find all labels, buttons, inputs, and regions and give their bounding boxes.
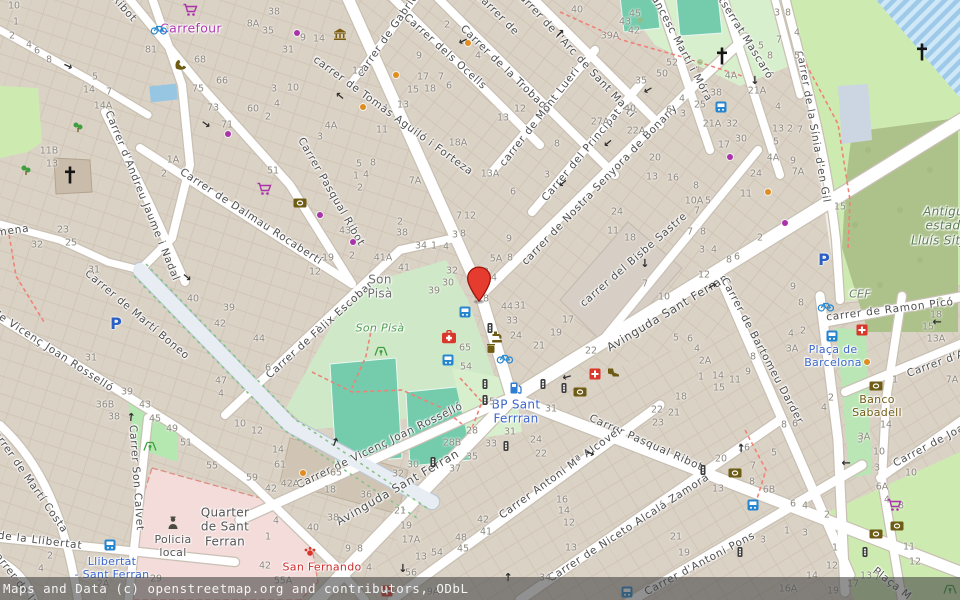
street-label: Carrer de Vicenç Joan Rosselló <box>295 400 465 492</box>
house-number: 4 <box>475 51 481 62</box>
house-number: 43 <box>139 400 151 411</box>
house-number: 18 <box>424 84 436 95</box>
playground-icon <box>374 346 388 357</box>
house-number: 7A <box>409 176 422 187</box>
place-label: Son Pisà <box>367 273 392 302</box>
house-number: 1 <box>431 241 437 252</box>
light-icon <box>482 395 488 406</box>
tree-icon <box>20 164 32 176</box>
map-canvas[interactable]: RibotCarrer Pasqual Ribotcarrer de Tomàs… <box>0 0 960 600</box>
house-number: 2A <box>699 356 712 367</box>
house-number: 32 <box>726 119 738 130</box>
house-number: 38 <box>268 7 280 18</box>
house-number: 7 <box>776 35 782 46</box>
cart-icon <box>183 4 198 17</box>
house-number: 10 <box>873 447 885 458</box>
church-icon <box>64 167 77 184</box>
house-number: 36 <box>360 490 372 501</box>
house-number: 7 <box>642 279 648 290</box>
poi-dot <box>727 154 733 160</box>
house-number: 7 <box>687 227 693 238</box>
house-number: 12 <box>563 518 575 529</box>
house-number: 13 <box>46 159 58 170</box>
house-number: 38 <box>327 513 339 524</box>
light-icon <box>430 457 436 468</box>
bus-icon <box>747 499 759 511</box>
house-number: 65 <box>459 343 471 354</box>
house-number: 8 <box>507 253 513 264</box>
house-number: 10 <box>905 468 917 479</box>
house-number: 47 <box>215 376 227 387</box>
house-number: 1 <box>784 526 790 537</box>
house-number: 38 <box>710 88 722 99</box>
cart-icon <box>887 499 902 512</box>
house-number: 8 <box>554 139 560 150</box>
house-number: 8 <box>785 8 791 19</box>
place-label: Banco Sabadell <box>852 393 902 419</box>
house-number: 6 <box>734 252 740 263</box>
house-number: 13 <box>712 484 724 495</box>
house-number: 7 <box>694 206 700 217</box>
house-number: 7A <box>792 167 805 178</box>
house-number: 18 <box>324 485 336 496</box>
oneway-arrow: → <box>841 457 850 470</box>
house-number: 7A <box>946 375 959 386</box>
poi-dot <box>350 239 356 245</box>
house-number: 45 <box>149 414 161 425</box>
house-number: 45 <box>629 9 641 20</box>
house-number: 3 <box>774 8 780 19</box>
house-number: 7 <box>438 72 444 83</box>
house-number: 37 <box>449 464 461 475</box>
house-number: 4A <box>725 71 738 82</box>
house-number: 4 <box>273 516 279 527</box>
police-icon <box>167 516 179 530</box>
street-label: Ribot <box>109 0 139 25</box>
street-label: Montserrat Mascaró <box>702 0 776 82</box>
house-number: 38 <box>108 412 120 423</box>
house-number: 12 <box>909 557 921 568</box>
house-number: 44 <box>253 334 265 345</box>
house-number: 8 <box>781 420 787 431</box>
house-number: 21 <box>668 408 680 419</box>
bike-icon <box>151 23 168 35</box>
house-number: 14 <box>313 34 325 45</box>
house-number: 23 <box>57 225 69 236</box>
house-number: 10 <box>658 292 670 303</box>
house-number: 3A <box>786 344 799 355</box>
light-icon <box>737 547 743 558</box>
house-number: 2 <box>787 124 793 135</box>
house-number: 66 <box>216 76 228 87</box>
house-number: 32 <box>392 469 404 480</box>
house-number: 3 <box>544 170 550 181</box>
place-label: Antigu estadi Lluís Sitj <box>911 204 960 247</box>
house-number: 34 <box>415 241 427 252</box>
place-label: BP Sant Ferrran <box>492 398 541 427</box>
poi-dot <box>782 220 788 226</box>
house-number: 24 <box>510 331 522 342</box>
house-number: 11B <box>40 146 59 157</box>
house-number: 14 <box>272 445 284 456</box>
house-number: 4 <box>274 99 280 110</box>
house-number: 8 <box>357 544 363 555</box>
house-number: 31 <box>545 404 557 415</box>
house-number: 33 <box>485 439 497 450</box>
place-label: Son Pisà <box>356 321 405 334</box>
location-pin-icon <box>466 266 492 304</box>
bus-icon <box>715 101 727 113</box>
shoe-icon <box>606 368 620 379</box>
house-number: 31 <box>85 353 97 364</box>
house-number: 6A <box>876 482 889 493</box>
house-number: 32 <box>31 240 43 251</box>
street-label: Carrer de Martí Costa <box>0 422 70 535</box>
house-number: 5A <box>490 254 503 265</box>
house-number: 3 <box>317 132 323 143</box>
house-number: 6 <box>510 187 516 198</box>
bank-icon <box>869 529 883 539</box>
house-number: 2 <box>349 251 355 262</box>
oneway-arrow: → <box>332 88 347 104</box>
house-number: 30 <box>407 460 419 471</box>
house-number: 8 <box>693 181 699 192</box>
street-label: carrer del Bisbe Sastre <box>578 210 690 310</box>
house-number: 21 <box>670 532 682 543</box>
house-number: 68 <box>194 55 206 66</box>
house-number: 6 <box>446 81 452 92</box>
house-number: 6 <box>265 363 271 374</box>
house-number: 75 <box>192 84 204 95</box>
house-number: 13 <box>772 124 784 135</box>
street-label: Carrer de <box>473 0 522 38</box>
house-number: 60 <box>247 104 259 115</box>
bike-icon <box>818 300 835 312</box>
house-number: 10 <box>287 83 299 94</box>
house-number: 41A <box>374 253 393 264</box>
house-number: 42A <box>281 479 300 490</box>
house-number: 9 <box>790 282 796 293</box>
house-number: 14 <box>558 506 570 517</box>
house-number: 3 <box>271 84 277 95</box>
house-number: 2 <box>444 20 450 31</box>
house-number: 22 <box>585 346 597 357</box>
house-number: 4A <box>767 153 780 164</box>
playground-icon <box>143 441 157 452</box>
house-number: 19 <box>678 548 690 559</box>
street-label: carrer de Gabriel <box>354 0 423 80</box>
house-number: 1 <box>13 17 19 28</box>
house-number: 8 <box>767 51 773 62</box>
house-number: 40 <box>307 523 319 534</box>
house-number: 32 <box>446 266 458 277</box>
poi-dot <box>393 72 399 78</box>
street-label: de Vicenç Joan Rosselló <box>0 307 116 395</box>
house-number: 14A <box>94 101 113 112</box>
house-number: 4 <box>794 28 800 39</box>
light-icon <box>540 379 546 390</box>
house-number: 11 <box>903 542 915 553</box>
house-number: 6 <box>790 499 796 510</box>
oneway-arrow: → <box>124 412 138 422</box>
house-number: 81 <box>145 45 157 56</box>
house-number: 41 <box>480 527 492 538</box>
house-number: 3 <box>760 535 766 546</box>
house-number: 19 <box>550 328 562 339</box>
house-number: 13A <box>927 334 946 345</box>
house-number: 2 <box>357 183 363 194</box>
house-number: 35 <box>262 26 274 37</box>
house-number: 39 <box>428 286 440 297</box>
house-number: 3 <box>874 463 880 474</box>
house-number: 1 <box>698 372 704 383</box>
house-number: 61 <box>274 460 286 471</box>
oneway-arrow: → <box>639 258 652 267</box>
light-icon <box>482 379 488 390</box>
house-number: 12 <box>826 561 838 572</box>
house-number: 31 <box>88 265 100 276</box>
oneway-arrow: → <box>641 82 655 98</box>
house-number: 2 <box>824 510 830 521</box>
house-number: 11 <box>376 125 388 136</box>
house-number: 42 <box>265 484 277 495</box>
map-marker[interactable] <box>466 266 492 308</box>
oneway-arrow: → <box>932 316 941 329</box>
house-number: 2 <box>397 217 403 228</box>
bank-icon <box>293 198 307 208</box>
house-number: 30 <box>442 278 454 289</box>
oneway-arrow: → <box>61 58 75 74</box>
house-number: 16 <box>556 495 568 506</box>
house-number: 28B <box>443 438 462 449</box>
house-number: 3A <box>858 432 871 443</box>
house-number: 15 <box>713 383 725 394</box>
house-number: 8 <box>700 227 706 238</box>
house-number: 21A <box>748 86 767 97</box>
house-number: 7 <box>106 87 112 98</box>
house-number: 45 <box>457 544 469 555</box>
house-number: 12 <box>309 267 321 278</box>
house-number: 8 <box>749 477 755 488</box>
house-number: 30 <box>735 134 747 145</box>
house-number: 12 <box>464 211 476 222</box>
place-label: Carrefour <box>160 21 222 36</box>
house-number: 17 <box>417 72 429 83</box>
house-number: 18A <box>449 138 468 149</box>
place-label: Quarter de Sant Ferran <box>201 505 249 548</box>
light-icon <box>700 465 706 476</box>
trash-icon <box>487 343 496 354</box>
house-number: 24 <box>530 435 542 446</box>
oneway-arrow: → <box>749 75 762 84</box>
place-label: Plaça de Barcelona <box>804 343 862 369</box>
attribution-bar: Maps and Data (c) openstreetmap.org and … <box>0 577 960 600</box>
house-number: 4 <box>366 563 372 574</box>
house-number: 17A <box>402 535 421 546</box>
oneway-arrow: → <box>179 269 194 285</box>
house-number: 8 <box>798 298 804 309</box>
house-number: 55 <box>206 461 218 472</box>
house-number: 4 <box>802 501 808 512</box>
house-number: 51 <box>180 438 192 449</box>
house-number: 20 <box>715 454 727 465</box>
house-number: 4 <box>694 344 700 355</box>
house-number: 15 <box>834 202 846 213</box>
place-label: San Fernando <box>282 560 361 573</box>
house-number: 10 <box>234 419 246 430</box>
house-number: 31 <box>514 301 526 312</box>
oneway-arrow: → <box>397 563 410 572</box>
house-number: 5 <box>758 41 764 52</box>
house-number: 11 <box>740 189 752 200</box>
house-number: 24 <box>611 207 623 218</box>
house-number: 7 <box>750 461 756 472</box>
house-number: 18 <box>624 233 636 244</box>
house-number: 31 <box>504 427 516 438</box>
house-number: 25 <box>694 100 706 111</box>
oneway-arrow: → <box>327 435 342 448</box>
house-number: 13 <box>397 100 409 111</box>
street-label: Carrer de Joa <box>891 422 960 470</box>
house-number: 4 <box>26 40 32 51</box>
house-number: 4 <box>38 564 44 575</box>
street-label: Carrer de Dalmau Rocabertí <box>177 166 324 268</box>
poi-dot <box>360 104 366 110</box>
house-number: 50 <box>656 69 668 80</box>
house-number: 41 <box>398 263 410 274</box>
house-number: 13 <box>497 113 509 124</box>
house-number: 5 <box>773 137 779 148</box>
house-number: 8 <box>750 352 756 363</box>
house-number: 22 <box>535 449 547 460</box>
house-number: 25 <box>65 238 77 249</box>
house-number: 42 <box>628 26 640 37</box>
house-number: 9 <box>745 367 751 378</box>
place-label: CEF <box>849 287 871 300</box>
fuel-icon <box>510 382 523 395</box>
house-number: 9 <box>416 51 422 62</box>
house-number: 39 <box>223 303 235 314</box>
house-number: 8A <box>247 19 260 30</box>
house-number: 22A <box>627 126 646 137</box>
house-number: 12 <box>698 270 710 281</box>
house-number: 6 <box>666 105 672 116</box>
house-number: 51 <box>267 166 279 177</box>
oneway-arrow: → <box>198 116 213 132</box>
phone-icon <box>174 58 186 70</box>
house-number: 5 <box>705 196 711 207</box>
bank-icon <box>573 387 587 397</box>
oneway-arrow: → <box>735 443 748 452</box>
house-number: 3 <box>802 528 808 539</box>
attribution-text: Maps and Data (c) openstreetmap.org and … <box>0 581 469 596</box>
house-number: 6 <box>792 419 798 430</box>
house-number: 42 <box>477 515 489 526</box>
house-number: 44 <box>501 302 513 313</box>
house-number: 2 <box>757 233 763 244</box>
house-number: 5 <box>794 51 800 62</box>
house-number: 13 <box>646 172 658 183</box>
house-number: 12 <box>514 104 526 115</box>
house-number: 2 <box>161 169 167 180</box>
house-number: 3 <box>680 109 686 120</box>
house-number: 54 <box>431 548 443 559</box>
house-number: 5 <box>356 159 362 170</box>
house-number: 6 <box>687 334 693 345</box>
light-icon <box>862 547 868 558</box>
house-number: 21 <box>394 506 406 517</box>
house-number: 8 <box>460 229 466 240</box>
house-number: 17 <box>718 140 730 151</box>
house-number: 6B <box>763 485 776 496</box>
house-number: 43 <box>339 226 351 237</box>
house-number: 9 <box>345 544 351 555</box>
house-number: 9 <box>300 33 306 44</box>
street-label: Francesc Martí i Móra <box>643 0 715 104</box>
house-number: 13A <box>481 169 500 180</box>
bank-icon <box>728 468 742 478</box>
cart-icon <box>257 183 272 196</box>
house-number: 13 <box>565 543 577 554</box>
house-number: 19 <box>400 521 412 532</box>
oneway-arrow: → <box>600 135 615 151</box>
house-number: 40 <box>624 104 636 115</box>
museum-icon <box>333 28 347 40</box>
house-number: 48 <box>455 533 467 544</box>
house-number: 40 <box>571 5 583 16</box>
house-number: 11 <box>607 226 619 237</box>
house-number: 73 <box>207 103 219 114</box>
house-number: 4 <box>218 389 224 400</box>
house-number: 15 <box>407 85 419 96</box>
bus-icon <box>442 354 454 366</box>
house-number: 2 <box>265 112 271 123</box>
house-number: 21 <box>533 341 545 352</box>
house-number: 1 <box>832 543 838 554</box>
street-label: de la Llibertat <box>0 530 83 553</box>
house-number: 42 <box>214 319 226 330</box>
poi-dot <box>294 30 300 36</box>
house-number: 14 <box>712 371 724 382</box>
bank-icon <box>869 381 883 391</box>
house-number: 71 <box>221 120 233 131</box>
house-number: 17 <box>562 315 574 326</box>
poi-dot <box>300 470 306 476</box>
house-number: 8 <box>46 55 52 66</box>
house-number: 1 <box>892 375 898 386</box>
house-number: 35 <box>466 452 478 463</box>
house-number: 10 <box>8 1 20 12</box>
house-number: 40 <box>187 294 199 305</box>
house-number: 21A <box>703 119 722 130</box>
pharmacy-icon <box>857 325 868 336</box>
house-number: 4 <box>775 102 781 113</box>
house-number: 5 <box>771 448 777 459</box>
poi-dot <box>864 359 870 365</box>
house-number: 4 <box>679 94 685 105</box>
house-number: 5 <box>92 72 98 83</box>
house-number: 4A <box>325 121 338 132</box>
house-number: 2 <box>828 393 834 404</box>
house-number: 23 <box>652 418 664 429</box>
poi-dot <box>765 189 771 195</box>
church-icon <box>916 44 929 61</box>
street-label: mena <box>0 222 30 239</box>
tree-icon <box>72 121 84 133</box>
house-number: 20 <box>649 153 661 164</box>
house-number: 4 <box>821 403 827 414</box>
house-number: 59 <box>246 473 258 484</box>
